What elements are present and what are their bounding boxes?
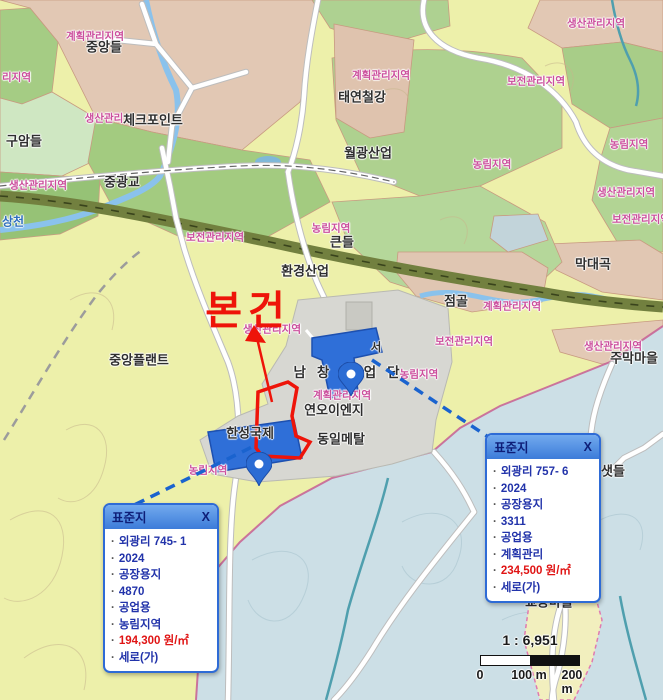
popup-item-list: 외광리 757- 6 2024 공장용지 3311 공업용 계획관리 234,5…: [487, 459, 599, 601]
popup-item: 4870: [111, 584, 213, 601]
popup-item: 공업용: [111, 600, 213, 617]
popup-item: 계획관리: [493, 547, 595, 564]
map-viewport: 계획관리지역 중앙들 리지역 생산관리 체크포인트 구암들 계획관리지역 태연철…: [0, 0, 663, 700]
scale-tick: 0: [477, 668, 484, 682]
zone-label: 생산관리지역: [9, 178, 67, 193]
place-label: 큰들: [330, 232, 354, 251]
place-label: 샛들: [601, 461, 625, 480]
subject-property-label: 본건: [205, 278, 291, 336]
scale-tick: 100 m: [511, 668, 546, 682]
place-label: 한성국제: [226, 423, 274, 442]
scale-bar: [480, 655, 580, 666]
zone-label: 생산관리지역: [597, 185, 655, 200]
place-label: 월광산업: [344, 143, 392, 162]
zone-label: 농림지역: [400, 367, 439, 382]
zone-label: 생산관리지역: [567, 16, 625, 31]
place-label: 점골: [444, 291, 468, 310]
place-label: 막대곡: [575, 254, 611, 273]
place-label: 중앙들: [86, 37, 122, 56]
map-scale: 1 : 6,951 0 100 m 200 m: [449, 632, 611, 688]
popup-standard-land-right: 표준지 X 외광리 757- 6 2024 공장용지 3311 공업용 계획관리…: [485, 433, 601, 603]
popup-title: 표준지: [112, 507, 147, 526]
popup-item: 2024: [493, 481, 595, 498]
place-label: 연오이엔지: [304, 400, 364, 419]
zone-label: 보전관리지역: [612, 212, 663, 227]
popup-item: 공장용지: [493, 497, 595, 514]
popup-item: 세로(가): [111, 650, 213, 667]
zone-label: 농림지역: [610, 137, 649, 152]
popup-title-bar: 표준지 X: [487, 435, 599, 459]
scale-tick: 200 m: [562, 668, 595, 696]
popup-item: 공업용: [493, 530, 595, 547]
popup-title-bar: 표준지 X: [105, 505, 217, 529]
place-label: 동일메탈: [317, 429, 365, 448]
popup-item: 외광리 745- 1: [111, 534, 213, 551]
popup-item: 외광리 757- 6: [493, 464, 595, 481]
place-label: 중광교: [104, 172, 140, 191]
zone-label: 리지역: [2, 70, 31, 85]
popup-title: 표준지: [494, 437, 529, 456]
close-icon[interactable]: X: [584, 440, 592, 454]
zone-label: 계획관리지역: [483, 299, 541, 314]
place-label: 체크포인트: [123, 110, 183, 129]
water-label: 상천: [2, 213, 24, 230]
zone-label: 보전관리지역: [507, 74, 565, 89]
popup-item-price: 194,300 원/㎡: [111, 633, 213, 650]
place-label: 구암들: [6, 131, 42, 150]
popup-item: 농림지역: [111, 617, 213, 634]
scale-ratio-label: 1 : 6,951: [449, 632, 611, 648]
place-label: 환경산업: [281, 261, 329, 280]
scale-bar-segment: [530, 656, 579, 665]
zone-label: 보전관리지역: [435, 334, 493, 349]
place-label: 중앙플랜트: [109, 350, 169, 369]
popup-item: 2024: [111, 551, 213, 568]
popup-item-price: 234,500 원/㎡: [493, 563, 595, 580]
popup-item: 3311: [493, 514, 595, 531]
zone-label: 농림지역: [473, 157, 512, 172]
place-label: 태연철강: [338, 87, 386, 106]
popup-standard-land-left: 표준지 X 외광리 745- 1 2024 공장용지 4870 공업용 농림지역…: [103, 503, 219, 673]
scale-bar-segment: [481, 656, 530, 665]
place-label: 주막마을: [610, 348, 658, 367]
popup-item-list: 외광리 745- 1 2024 공장용지 4870 공업용 농림지역 194,3…: [105, 529, 217, 671]
zone-label: 농림지역: [189, 463, 228, 478]
zone-label: 계획관리지역: [352, 68, 410, 83]
popup-item: 공장용지: [111, 567, 213, 584]
zone-label: 생산관리: [85, 111, 124, 126]
zone-label: 보전관리지역: [186, 230, 244, 245]
place-label: 서: [371, 339, 382, 355]
close-icon[interactable]: X: [202, 510, 210, 524]
popup-item: 세로(가): [493, 580, 595, 597]
